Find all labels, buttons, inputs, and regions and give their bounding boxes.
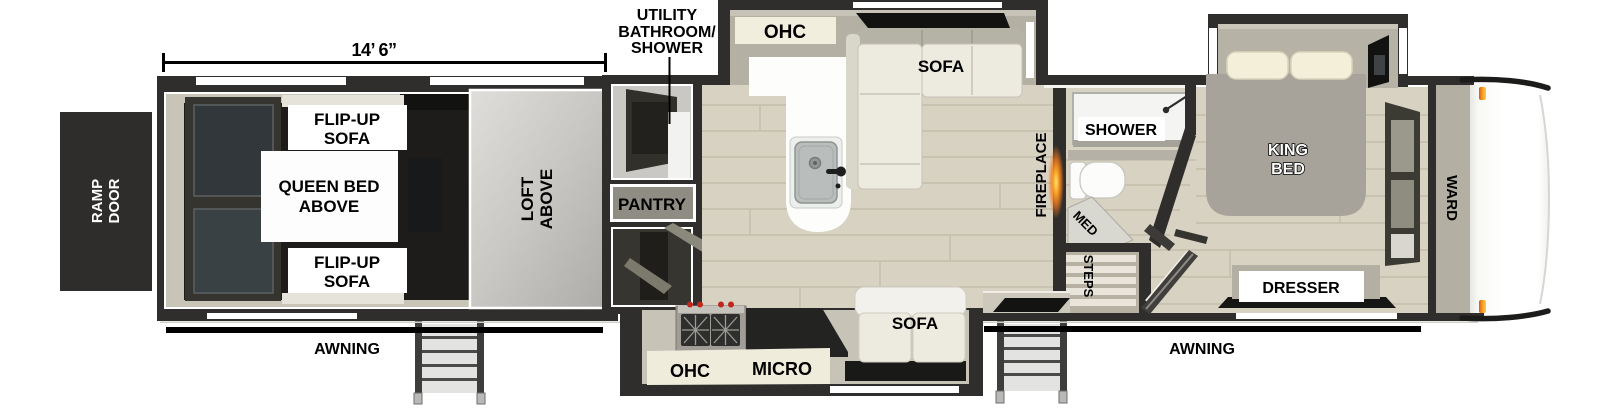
svg-text:RAMP: RAMP	[89, 179, 106, 223]
svg-text:LOFT: LOFT	[518, 176, 537, 221]
svg-text:SOFA: SOFA	[918, 57, 964, 76]
svg-text:SOFA: SOFA	[892, 314, 938, 333]
svg-text:BATHROOM/: BATHROOM/	[618, 24, 716, 41]
svg-text:DRESSER: DRESSER	[1262, 280, 1340, 297]
svg-text:SOFA: SOFA	[324, 129, 370, 148]
svg-text:SHOWER: SHOWER	[631, 40, 703, 57]
svg-text:14’ 6”: 14’ 6”	[351, 40, 396, 60]
svg-text:MICRO: MICRO	[752, 359, 812, 379]
svg-text:STEPS: STEPS	[1081, 255, 1096, 298]
svg-text:QUEEN BED: QUEEN BED	[278, 177, 379, 196]
svg-text:DOOR: DOOR	[106, 178, 123, 223]
svg-text:PANTRY: PANTRY	[618, 195, 687, 214]
svg-text:FLIP-UP: FLIP-UP	[314, 110, 380, 129]
svg-text:UTILITY: UTILITY	[637, 7, 698, 24]
svg-text:BED: BED	[1271, 161, 1305, 178]
svg-text:SOFA: SOFA	[324, 272, 370, 291]
svg-text:AWNING: AWNING	[314, 341, 380, 358]
svg-text:WARD: WARD	[1443, 175, 1460, 221]
svg-text:SHOWER: SHOWER	[1085, 122, 1157, 139]
svg-text:ABOVE: ABOVE	[537, 169, 556, 229]
svg-text:FIREPLACE: FIREPLACE	[1033, 132, 1050, 217]
svg-text:OHC: OHC	[670, 361, 710, 381]
svg-text:AWNING: AWNING	[1169, 341, 1235, 358]
svg-text:FLIP-UP: FLIP-UP	[314, 253, 380, 272]
svg-text:KING: KING	[1268, 142, 1308, 159]
svg-text:OHC: OHC	[764, 22, 807, 43]
svg-text:ABOVE: ABOVE	[299, 197, 359, 216]
